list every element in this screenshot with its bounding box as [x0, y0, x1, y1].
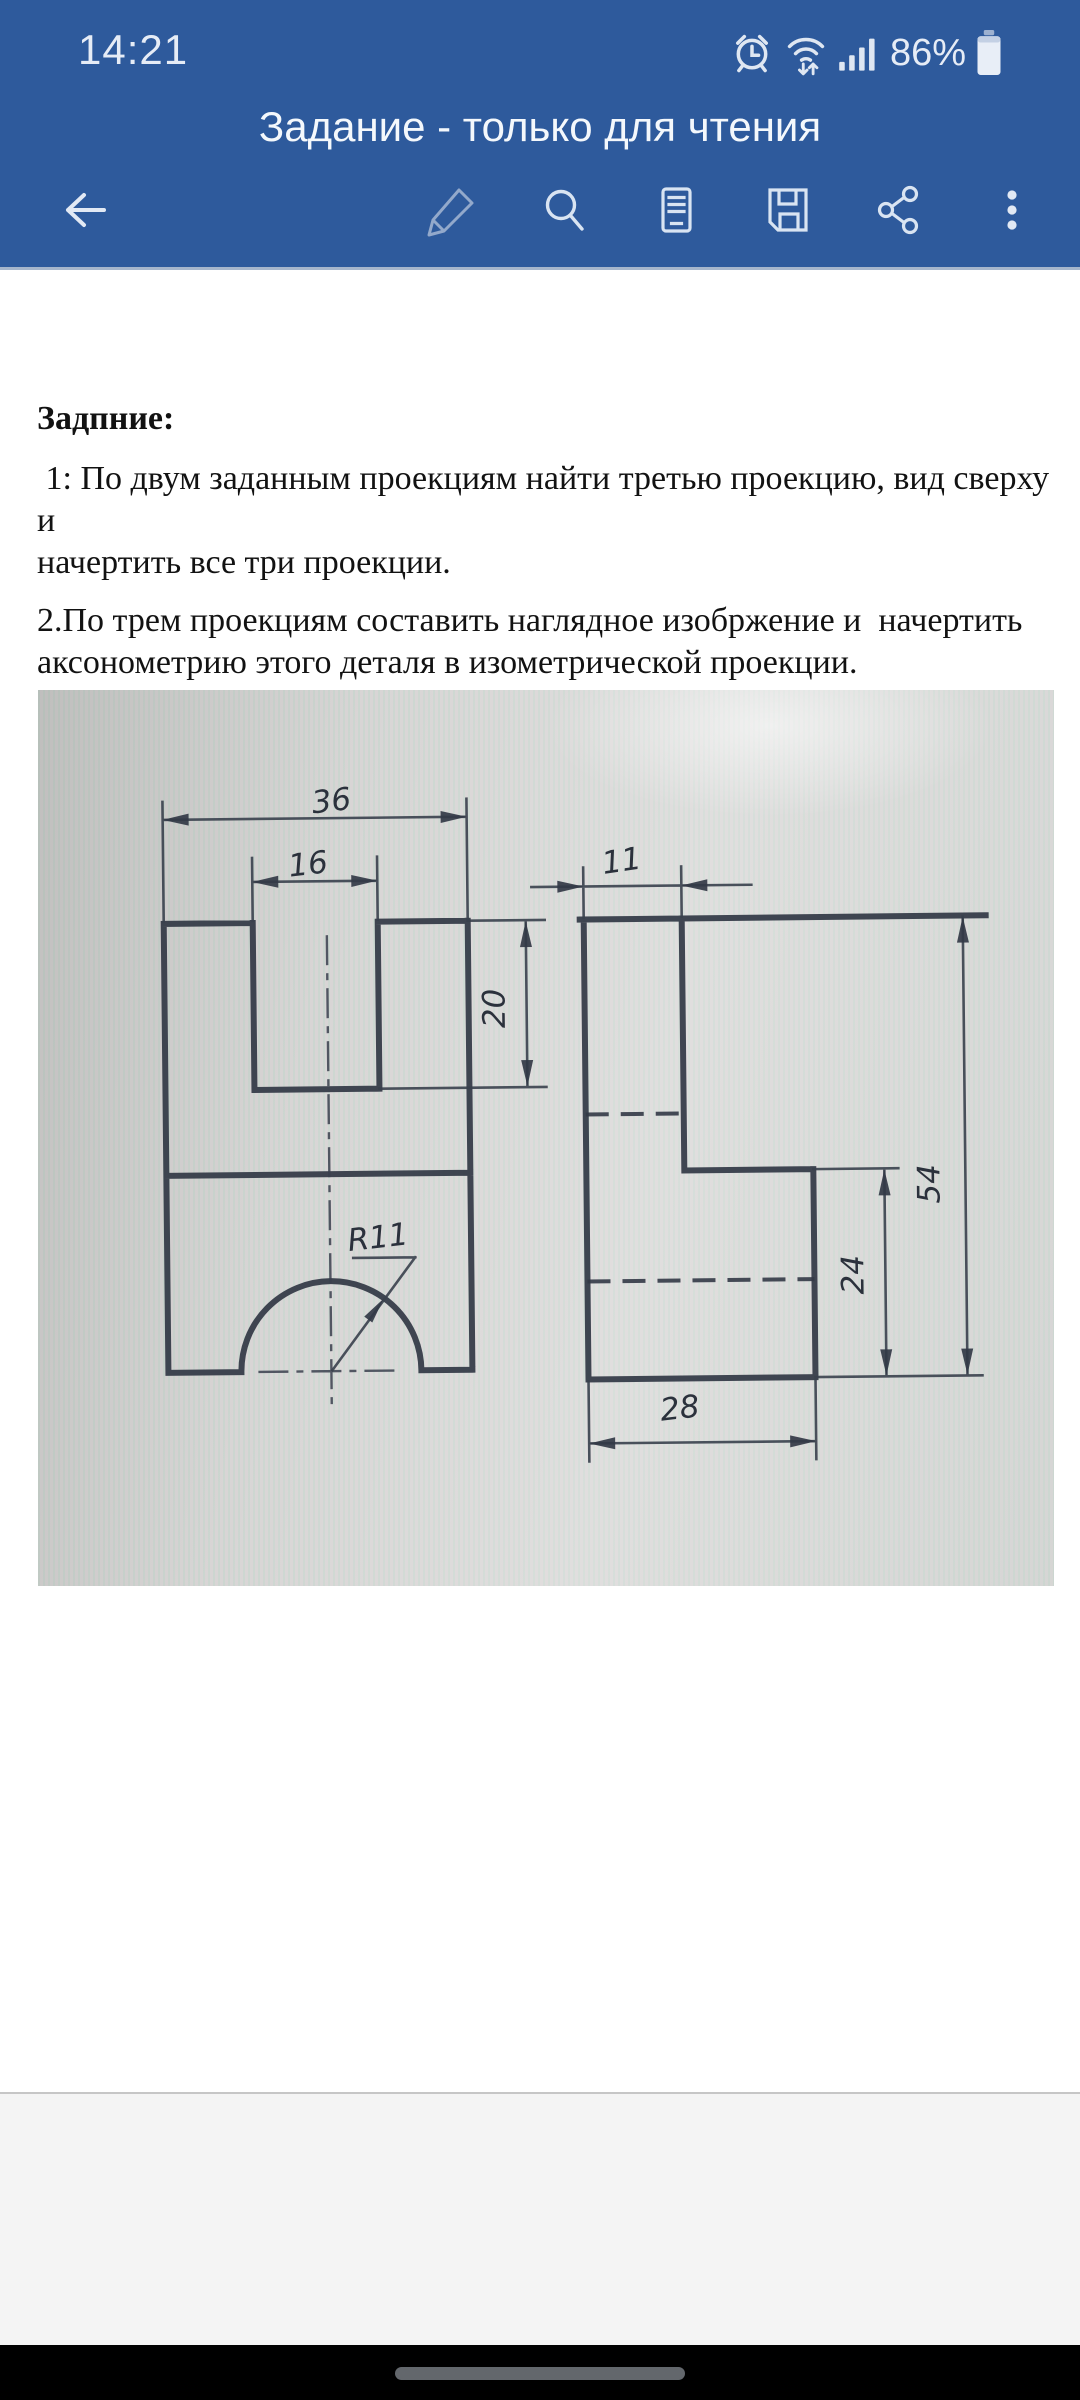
- dim-label-notch-depth: 20: [476, 989, 512, 1029]
- bottom-panel: [0, 2092, 1080, 2345]
- back-arrow-icon: [45, 182, 125, 238]
- dim-label-top-depth: 11: [599, 840, 643, 881]
- wifi-data-icon: [784, 30, 828, 76]
- paragraph-line: начертить все три проекции.: [37, 542, 1054, 584]
- toolbar: [0, 182, 1080, 242]
- mobile-view-icon: [648, 182, 704, 238]
- paragraph-line: 1: По двум заданным проекциям найти трет…: [37, 458, 1054, 542]
- back-button[interactable]: [45, 182, 125, 238]
- save-button[interactable]: [760, 182, 816, 238]
- gesture-bar: [0, 2345, 1080, 2400]
- battery-percent: 86%: [890, 32, 966, 75]
- paragraph-line: аксонометрию этого деталя в изометрическ…: [37, 642, 1054, 684]
- document-page: Задпние: 1: По двум заданным проекциям н…: [0, 270, 1080, 2092]
- share-button[interactable]: [872, 182, 928, 238]
- kebab-menu-icon: [984, 182, 1040, 238]
- alarm-icon: [730, 30, 774, 76]
- search-button[interactable]: [536, 182, 592, 238]
- task-paragraph-1: 1: По двум заданным проекциям найти трет…: [37, 458, 1054, 584]
- phone-screen: 14:21: [0, 0, 1080, 2400]
- app-header: 14:21: [0, 0, 1080, 270]
- status-icons: 86%: [730, 30, 1002, 76]
- dim-label-base-depth: 28: [658, 1388, 701, 1428]
- status-time: 14:21: [78, 26, 188, 74]
- dim-label-overall-height: 54: [911, 1164, 947, 1204]
- task-heading: Задпние:: [37, 398, 1054, 440]
- drawing-image: 36 16 20 R11 11 24 54 28: [38, 690, 1054, 1586]
- page-title: Задание - только для чтения: [0, 103, 1080, 151]
- battery-icon: [976, 30, 1002, 76]
- mobile-view-button[interactable]: [648, 182, 704, 238]
- search-icon: [536, 182, 592, 238]
- share-icon: [872, 182, 928, 238]
- dim-label-radius: R11: [346, 1216, 411, 1259]
- signal-bars-icon: [838, 32, 878, 74]
- dim-label-step-height: 24: [835, 1255, 871, 1295]
- gesture-handle[interactable]: [395, 2367, 685, 2380]
- dim-label-notch-width: 16: [286, 844, 329, 884]
- save-floppy-icon: [760, 182, 816, 238]
- edit-button[interactable]: [424, 182, 480, 238]
- overflow-menu-button[interactable]: [984, 182, 1040, 238]
- pencil-icon: [424, 182, 480, 238]
- paragraph-line: 2.По трем проекциям составить наглядное …: [37, 600, 1054, 642]
- task-paragraph-2: 2.По трем проекциям составить наглядное …: [37, 600, 1054, 684]
- technical-drawing: 36 16 20 R11 11 24 54 28: [38, 690, 1054, 1586]
- dim-label-width-top: 36: [310, 781, 353, 821]
